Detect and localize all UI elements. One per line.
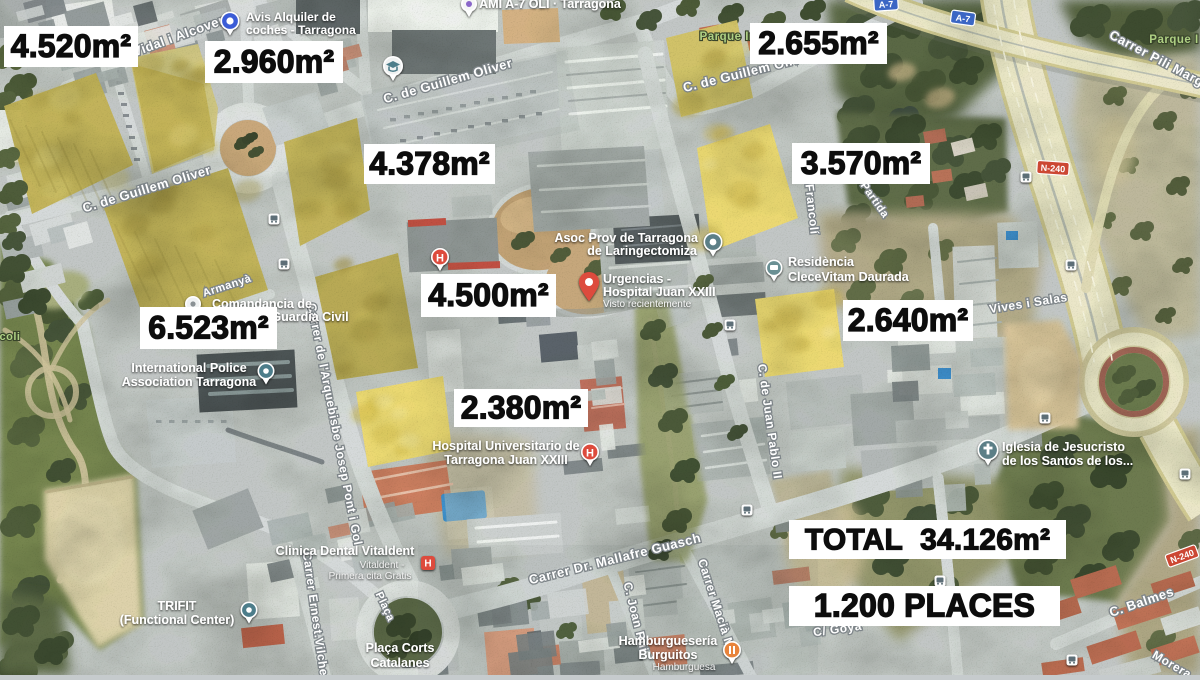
svg-text:de los Santos de los...: de los Santos de los... (1002, 454, 1133, 468)
svg-text:Primera cita Gratis: Primera cita Gratis (329, 571, 412, 582)
svg-text:Guardia Civil: Guardia Civil (271, 310, 348, 324)
svg-text:coches - Tarragona: coches - Tarragona (246, 23, 356, 37)
svg-text:Plaça Corts: Plaça Corts (366, 641, 435, 655)
svg-text:Asoc Prov de Tarragona: Asoc Prov de Tarragona (554, 231, 699, 245)
svg-text:4.500m²: 4.500m² (428, 277, 549, 313)
svg-text:1.200 PLACES: 1.200 PLACES (814, 588, 1035, 624)
svg-text:3.570m²: 3.570m² (801, 145, 922, 181)
svg-text:Avis Alquiler de: Avis Alquiler de (246, 10, 336, 24)
svg-text:Parque In: Parque In (700, 31, 757, 43)
svg-text:Hospital Juan XXIII: Hospital Juan XXIII (603, 285, 716, 299)
svg-text:Catalanes: Catalanes (370, 656, 429, 670)
svg-text:2.640m²: 2.640m² (848, 302, 969, 338)
svg-text:Association Tarragona: Association Tarragona (122, 375, 258, 389)
svg-text:(Functional Center): (Functional Center) (120, 613, 235, 627)
svg-text:de Laringectomiza: de Laringectomiza (587, 244, 698, 258)
svg-text:TRIFIT: TRIFIT (158, 599, 197, 613)
svg-text:2.960m²: 2.960m² (214, 44, 335, 80)
svg-text:Tarragona Juan XXIII: Tarragona Juan XXIII (444, 453, 567, 467)
svg-text:International Police: International Police (131, 361, 246, 375)
svg-text:H: H (586, 448, 594, 460)
svg-text:N-240: N-240 (1040, 163, 1065, 175)
svg-text:A-7: A-7 (878, 0, 893, 10)
svg-text:2.380m²: 2.380m² (461, 390, 582, 426)
svg-text:4.520m²: 4.520m² (11, 28, 132, 64)
svg-text:coli: coli (0, 331, 20, 343)
svg-text:Hamburguesería: Hamburguesería (619, 634, 719, 648)
svg-text:6.523m²: 6.523m² (148, 310, 269, 346)
svg-text:Iglesia de Jesucristo: Iglesia de Jesucristo (1002, 440, 1125, 454)
svg-text:CleceVitam Daurada: CleceVitam Daurada (788, 270, 910, 284)
svg-text:H: H (424, 559, 431, 570)
svg-text:Parque I: Parque I (1149, 34, 1198, 46)
svg-text:H: H (436, 253, 444, 265)
svg-text:AMI A-7 OLI · Tarragona: AMI A-7 OLI · Tarragona (479, 0, 622, 11)
svg-text:2.655m²: 2.655m² (758, 25, 879, 61)
svg-text:Hamburguesa: Hamburguesa (653, 662, 716, 673)
svg-text:Urgencias -: Urgencias - (603, 272, 671, 286)
svg-text:Hospital Universitario de: Hospital Universitario de (432, 439, 579, 453)
svg-text:A-7: A-7 (955, 13, 971, 25)
svg-text:4.378m²: 4.378m² (369, 146, 490, 182)
svg-text:Visto recientemente: Visto recientemente (603, 299, 692, 310)
svg-text:Vitaldent -: Vitaldent - (360, 560, 405, 571)
svg-text:Residència: Residència (788, 255, 855, 269)
svg-text:Burguitos: Burguitos (638, 648, 697, 662)
svg-text:TOTAL 34.126m²: TOTAL 34.126m² (805, 523, 1050, 556)
svg-text:Clinica Dental Vitaldent: Clinica Dental Vitaldent (276, 544, 416, 558)
